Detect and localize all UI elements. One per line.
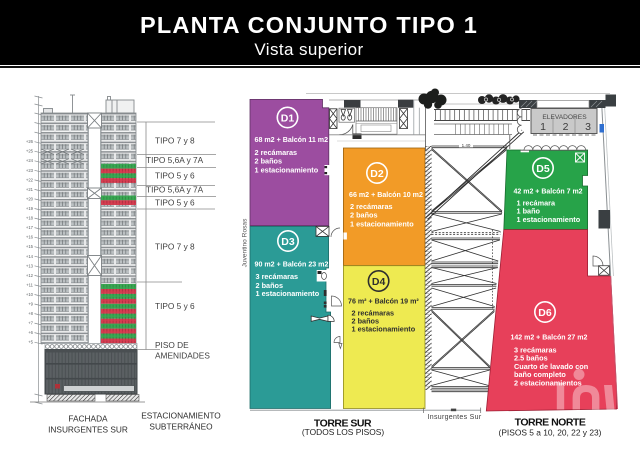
svg-text:1: 1 (540, 121, 546, 133)
svg-text:TIPO 5 y 6: TIPO 5 y 6 (155, 301, 195, 311)
svg-text:1 estacionamiento: 1 estacionamiento (256, 289, 320, 298)
svg-text:+16: +16 (26, 235, 34, 240)
svg-text:+24: +24 (26, 158, 34, 163)
svg-text:2 estacionamientos: 2 estacionamientos (514, 378, 582, 387)
svg-text:D5: D5 (536, 163, 550, 175)
svg-text:76 m² + Balcón 19 m²: 76 m² + Balcón 19 m² (348, 298, 419, 306)
svg-text:Insurgentes Sur: Insurgentes Sur (428, 414, 482, 421)
svg-text:+18: +18 (26, 216, 34, 221)
svg-text:Vista superior: Vista superior (254, 40, 363, 59)
svg-text:1 estacionamiento: 1 estacionamiento (350, 219, 414, 228)
svg-text:SUBTERRÁNEO: SUBTERRÁNEO (149, 422, 213, 432)
svg-text:+12: +12 (26, 273, 34, 278)
svg-text:ELEVADORES: ELEVADORES (542, 114, 587, 121)
svg-text:+15: +15 (26, 244, 34, 249)
svg-text:D3: D3 (281, 236, 295, 248)
svg-text:+25: +25 (26, 149, 34, 154)
svg-text:+19: +19 (26, 206, 34, 211)
svg-text:+20: +20 (26, 196, 34, 201)
svg-text:66 m2 + Balcón 10 m2: 66 m2 + Balcón 10 m2 (349, 191, 423, 199)
svg-text:D6: D6 (538, 307, 552, 319)
svg-text:2 recámaras: 2 recámaras (255, 148, 298, 157)
svg-text:3: 3 (585, 121, 591, 133)
svg-text:+17: +17 (26, 225, 34, 230)
svg-text:TIPO 7 y 8: TIPO 7 y 8 (155, 136, 195, 146)
svg-text:ESTACIONAMIENTO: ESTACIONAMIENTO (141, 411, 221, 421)
svg-text:+5: +5 (28, 340, 33, 345)
svg-text:+9: +9 (28, 302, 33, 307)
svg-text:142 m2 + Balcón 27 m2: 142 m2 + Balcón 27 m2 (511, 335, 588, 342)
svg-text:68 m2 + Balcón 11 m2: 68 m2 + Balcón 11 m2 (255, 136, 329, 144)
svg-text:1 estacionamiento: 1 estacionamiento (352, 324, 416, 333)
svg-text:1 estacionamiento: 1 estacionamiento (517, 215, 581, 224)
svg-text:1 estacionamiento: 1 estacionamiento (255, 165, 319, 174)
svg-text:42 m2 + Balcón 7 m2: 42 m2 + Balcón 7 m2 (514, 189, 583, 196)
svg-text:2: 2 (563, 121, 569, 133)
svg-text:PLANTA CONJUNTO TIPO 1: PLANTA CONJUNTO TIPO 1 (140, 12, 478, 38)
svg-text:+23: +23 (26, 168, 34, 173)
svg-text:+26: +26 (26, 139, 34, 144)
svg-text:D2: D2 (370, 168, 384, 180)
svg-text:2 baños: 2 baños (350, 211, 378, 220)
svg-text:(TODOS LOS PISOS): (TODOS LOS PISOS) (302, 427, 384, 437)
svg-text:+22: +22 (26, 177, 34, 182)
svg-text:(PISOS 5 a 10, 20, 22 y 23): (PISOS 5 a 10, 20, 22 y 23) (499, 428, 602, 438)
svg-text:+6: +6 (28, 330, 33, 335)
svg-text:AMENIDADES: AMENIDADES (155, 351, 210, 361)
svg-text:D1: D1 (281, 112, 295, 124)
svg-text:+10: +10 (26, 292, 34, 297)
svg-text:+11: +11 (26, 282, 33, 287)
svg-text:+7: +7 (28, 321, 33, 326)
svg-text:1.40: 1.40 (462, 143, 471, 148)
svg-text:+8: +8 (28, 311, 33, 316)
svg-text:+13: +13 (26, 263, 34, 268)
svg-text:TIPO 7 y 8: TIPO 7 y 8 (155, 242, 195, 252)
svg-text:TIPO 5 y 6: TIPO 5 y 6 (155, 171, 195, 181)
svg-text:TIPO 5 y 6: TIPO 5 y 6 (155, 198, 195, 208)
svg-text:+14: +14 (26, 254, 34, 259)
svg-text:3 recámaras: 3 recámaras (256, 272, 299, 281)
svg-text:90 m2 + Balcón 23 m2: 90 m2 + Balcón 23 m2 (255, 261, 329, 269)
svg-text:PISO DE: PISO DE (155, 340, 189, 350)
svg-text:FACHADA: FACHADA (68, 414, 108, 424)
svg-text:TIPO 5,6A y 7A: TIPO 5,6A y 7A (146, 155, 204, 165)
svg-text:+21: +21 (26, 187, 34, 192)
svg-text:D4: D4 (372, 276, 386, 288)
svg-text:TIPO 5,6A y 7A: TIPO 5,6A y 7A (146, 185, 204, 195)
svg-text:2 baños: 2 baños (255, 157, 283, 166)
svg-text:Juventino Rosas: Juventino Rosas (242, 218, 249, 267)
svg-text:INSURGENTES SUR: INSURGENTES SUR (48, 425, 128, 435)
